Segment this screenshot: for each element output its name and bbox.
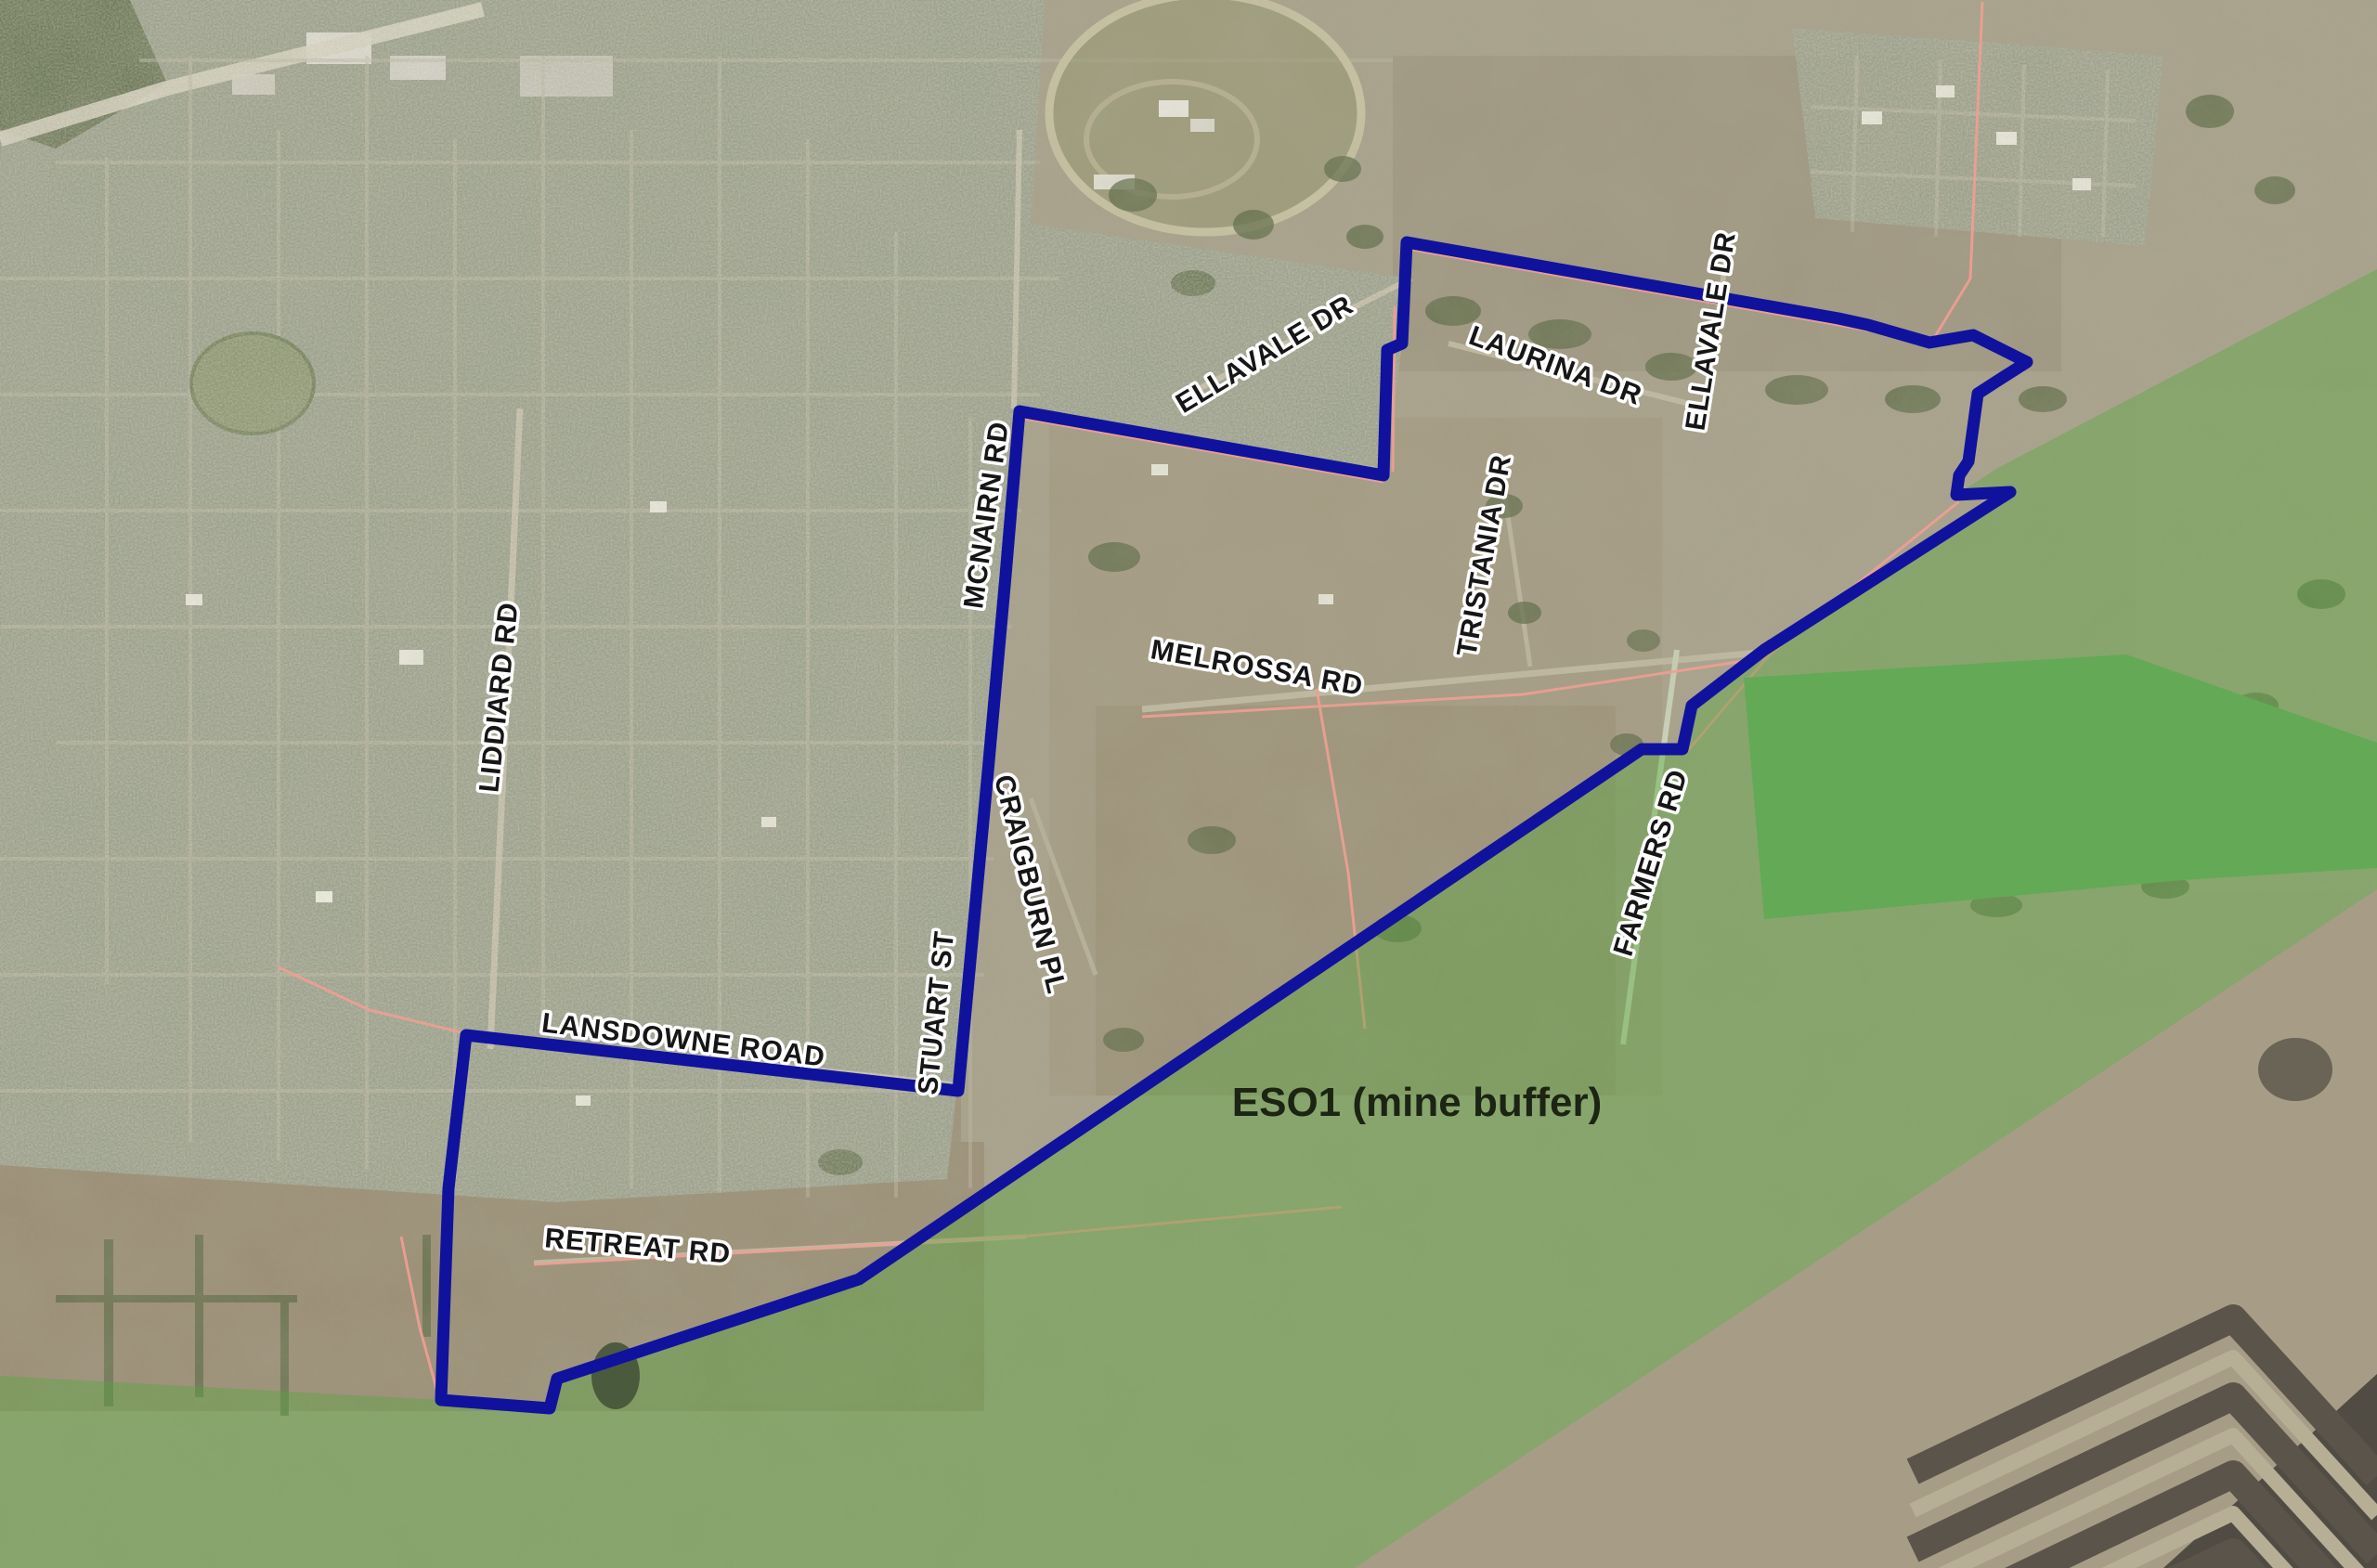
eso1-zone-label: ESO1 (mine buffer) — [1232, 1080, 1603, 1125]
map-svg: ELLAVALE DR LAURINA DR ELLAVALE DR MCNAI… — [0, 0, 2377, 1568]
mine-pond — [2258, 1038, 2332, 1101]
aerial-map: ELLAVALE DR LAURINA DR ELLAVALE DR MCNAI… — [0, 0, 2377, 1568]
